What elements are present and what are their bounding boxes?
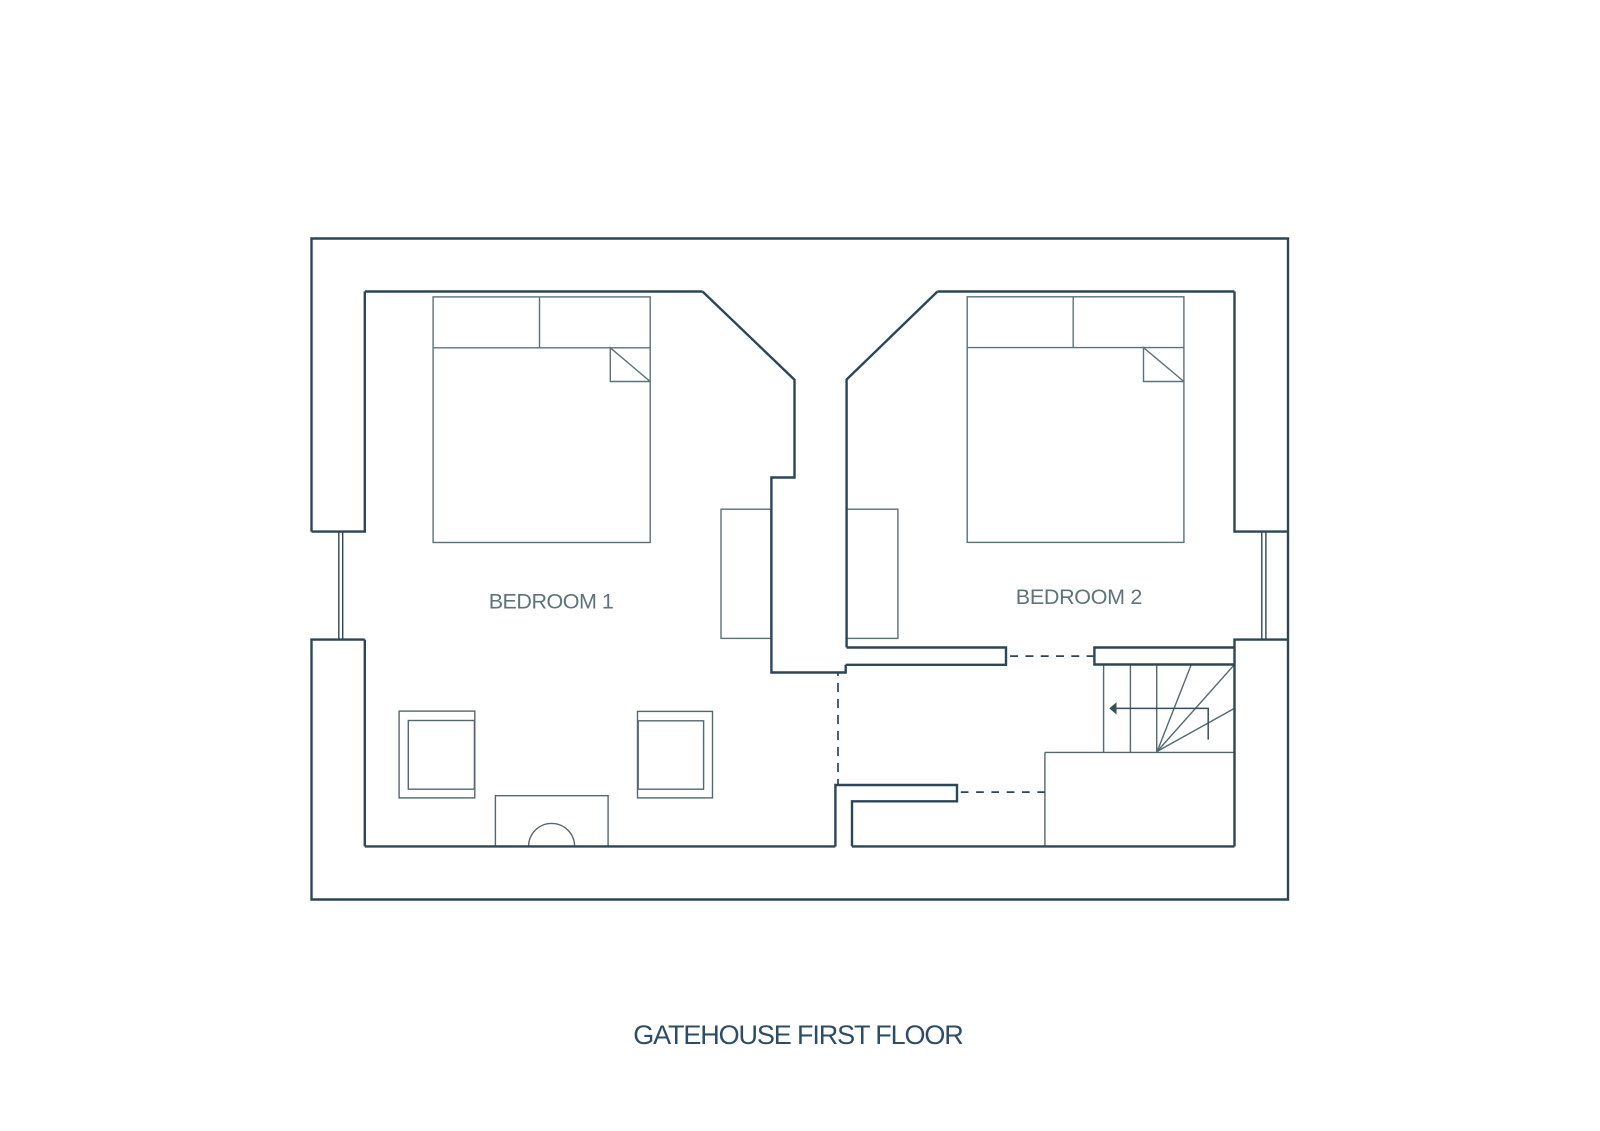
svg-text:BEDROOM 2: BEDROOM 2 [1016,585,1143,609]
svg-text:BEDROOM 1: BEDROOM 1 [489,590,614,614]
svg-text:GATEHOUSE FIRST FLOOR: GATEHOUSE FIRST FLOOR [633,1020,964,1050]
